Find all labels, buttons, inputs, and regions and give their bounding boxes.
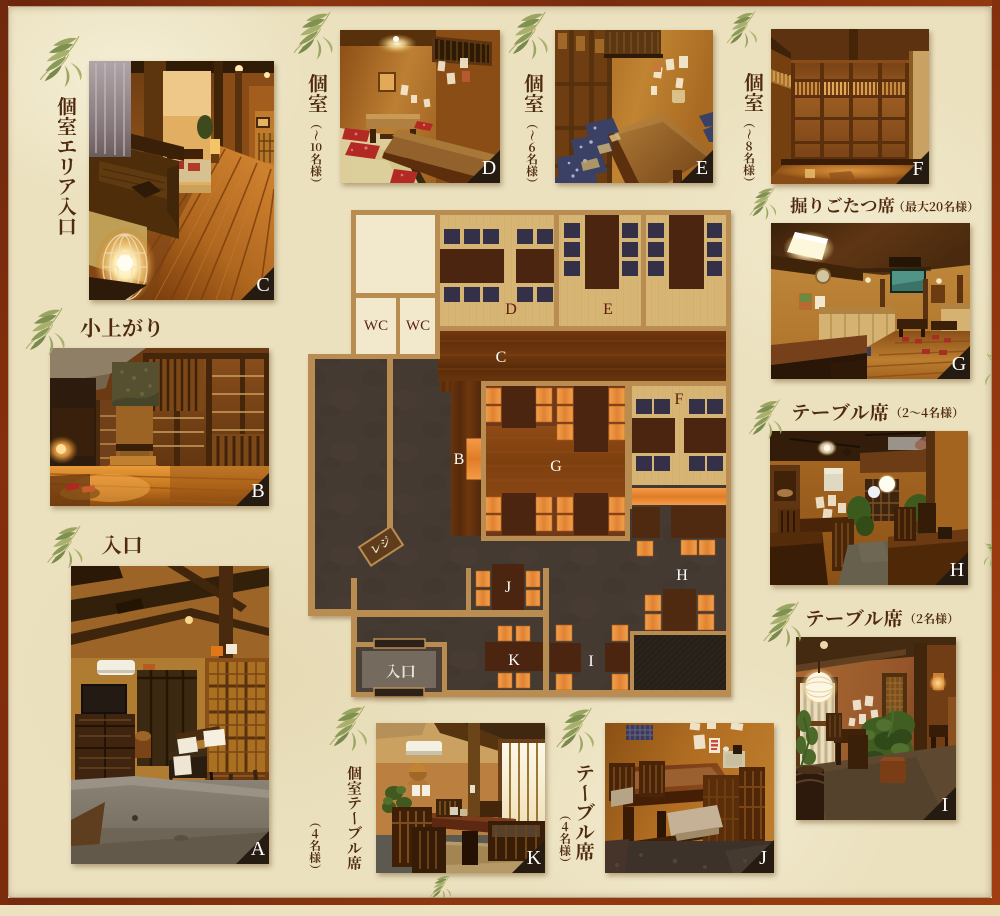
- svg-text:WC: WC: [406, 318, 430, 334]
- svg-text:H: H: [950, 559, 964, 581]
- svg-text:WC: WC: [364, 318, 388, 334]
- svg-text:I: I: [588, 653, 593, 670]
- svg-text:C: C: [496, 349, 507, 366]
- svg-text:B: B: [251, 480, 264, 502]
- svg-text:D: D: [482, 157, 496, 179]
- svg-text:D: D: [505, 301, 517, 318]
- svg-text:G: G: [952, 353, 966, 375]
- svg-text:J: J: [505, 579, 511, 596]
- svg-text:I: I: [942, 794, 949, 816]
- svg-text:K: K: [508, 652, 520, 669]
- svg-text:J: J: [759, 847, 767, 869]
- svg-text:G: G: [550, 458, 562, 475]
- svg-text:A: A: [251, 838, 266, 860]
- svg-text:F: F: [675, 391, 684, 408]
- svg-text:K: K: [527, 847, 542, 869]
- svg-text:E: E: [603, 301, 613, 318]
- svg-text:E: E: [696, 157, 708, 179]
- svg-text:F: F: [912, 158, 923, 180]
- svg-text:B: B: [454, 451, 465, 468]
- svg-text:H: H: [676, 567, 688, 584]
- svg-text:C: C: [256, 274, 269, 296]
